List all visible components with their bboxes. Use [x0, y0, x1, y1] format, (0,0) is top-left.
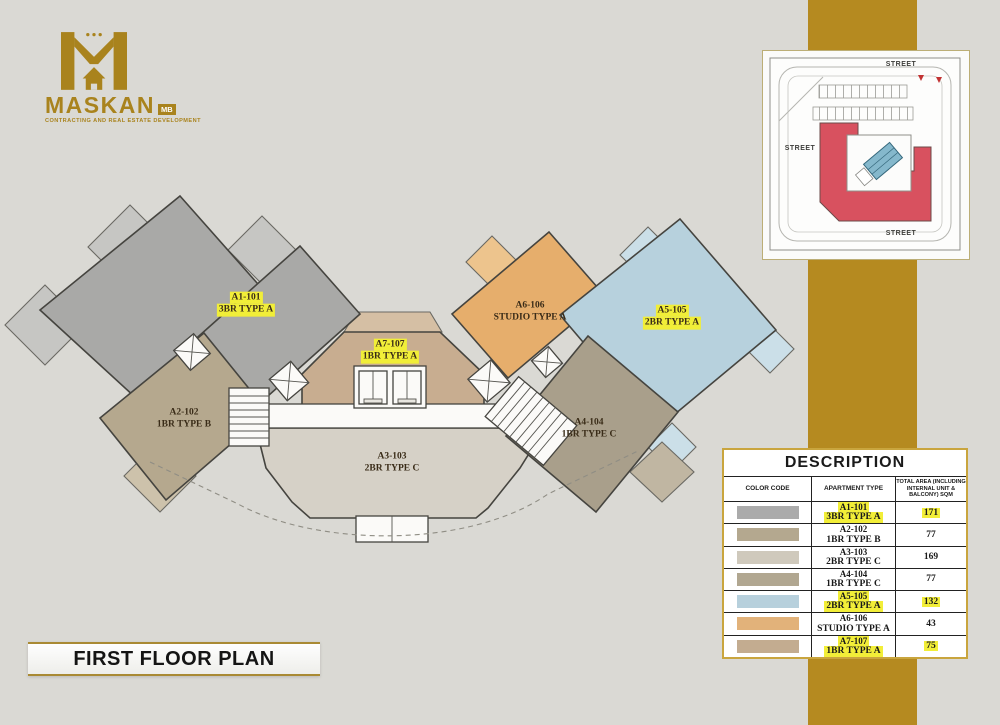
- brand-name: MASKAN: [45, 95, 155, 115]
- house-icon: [83, 67, 106, 78]
- maskan-m-icon: [61, 32, 127, 92]
- brand-logo: MASKAN MB CONTRACTING AND REAL ESTATE DE…: [45, 32, 195, 124]
- brand-tagline: CONTRACTING AND REAL ESTATE DEVELOPMENT: [45, 118, 195, 124]
- parking-row: [813, 107, 913, 120]
- table-row: A6-106STUDIO TYPE A 43: [724, 613, 966, 635]
- label-unit-a7: A7-1071BR TYPE A: [361, 339, 419, 364]
- color-swatch: [737, 640, 799, 653]
- color-swatch: [737, 595, 799, 608]
- elevators: [354, 366, 426, 408]
- col-header-total-area: TOTAL AREA (INCLUDING INTERNAL UNIT & BA…: [896, 477, 966, 502]
- color-swatch: [737, 617, 799, 630]
- table-row: A5-1052BR TYPE A 132: [724, 591, 966, 613]
- parking-row: [819, 85, 907, 98]
- page-title-bar: FIRST FLOOR PLAN: [28, 642, 320, 676]
- label-unit-a4: A4-1041BR TYPE C: [560, 417, 619, 442]
- color-swatch: [737, 528, 799, 541]
- page-title: FIRST FLOOR PLAN: [73, 648, 274, 671]
- street-label-left: STREET: [785, 145, 816, 152]
- color-swatch: [737, 573, 799, 586]
- description-table: DESCRIPTION COLOR CODE APARTMENT TYPE TO…: [722, 448, 968, 659]
- stairs-left: [229, 388, 269, 446]
- label-unit-a6: A6-106STUDIO TYPE A: [492, 300, 569, 325]
- color-swatch: [737, 506, 799, 519]
- table-row: A4-1041BR TYPE C 77: [724, 569, 966, 591]
- table-title: DESCRIPTION: [724, 450, 966, 477]
- street-label-bottom: STREET: [886, 230, 917, 237]
- brand-suffix-badge: MB: [158, 104, 176, 115]
- col-header-apartment-type: APARTMENT TYPE: [812, 477, 896, 502]
- table-row: A7-1071BR TYPE A 75: [724, 636, 966, 657]
- table-row: A2-1021BR TYPE B 77: [724, 524, 966, 546]
- label-unit-a2: A2-1021BR TYPE B: [155, 407, 213, 432]
- table-row: A3-1032BR TYPE C 169: [724, 547, 966, 569]
- table-row: A1-1013BR TYPE A 171: [724, 502, 966, 524]
- col-header-color-code: COLOR CODE: [724, 477, 812, 502]
- brand-name-row: MASKAN MB: [45, 95, 195, 115]
- street-label-top: STREET: [886, 61, 917, 68]
- site-location-map: STREET STREET STREET: [762, 50, 970, 260]
- label-unit-a5: A5-1052BR TYPE A: [643, 305, 701, 330]
- table-header-row: COLOR CODE APARTMENT TYPE TOTAL AREA (IN…: [724, 477, 966, 502]
- label-unit-a3: A3-1032BR TYPE C: [363, 451, 422, 476]
- label-unit-a1: A1-1013BR TYPE A: [217, 292, 275, 317]
- floor-plan-page: MASKAN MB CONTRACTING AND REAL ESTATE DE…: [0, 0, 1000, 725]
- color-swatch: [737, 551, 799, 564]
